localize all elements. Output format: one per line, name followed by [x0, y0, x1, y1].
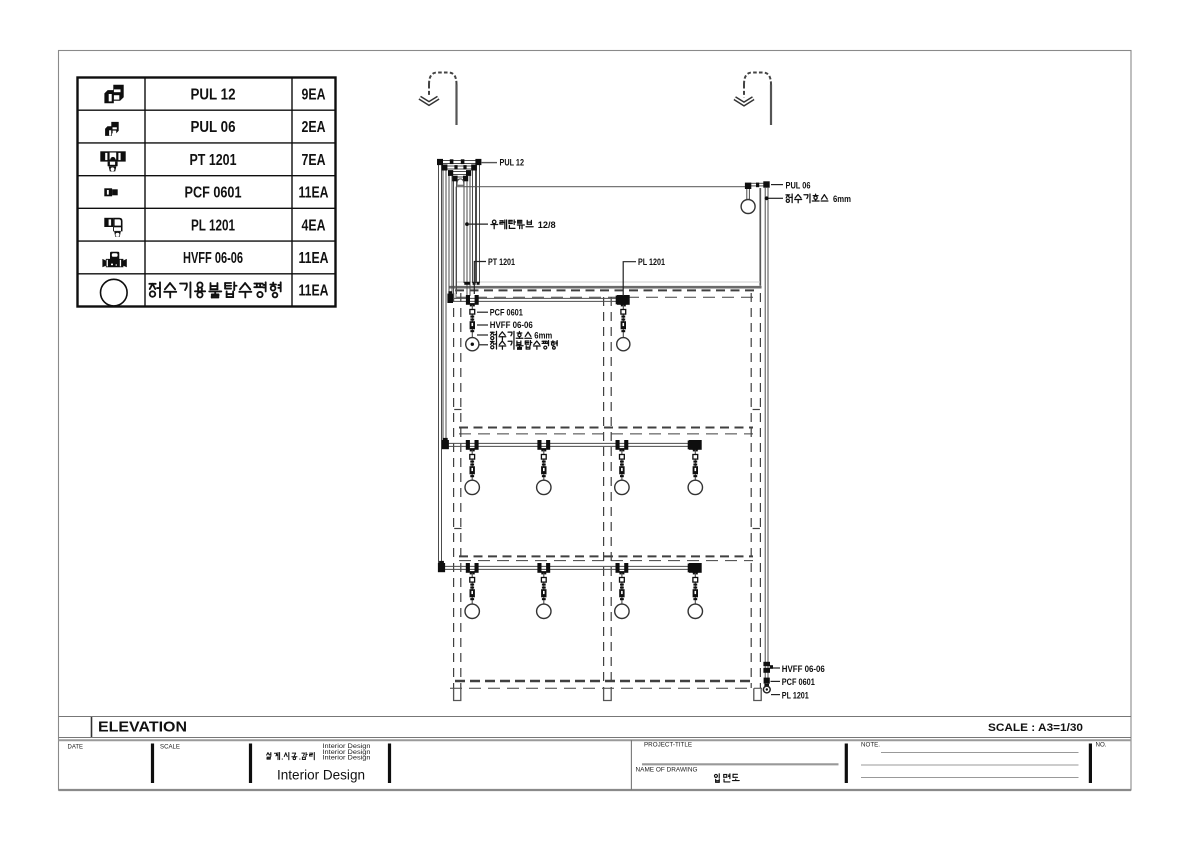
- svg-text:Interior Design: Interior Design: [323, 755, 371, 762]
- svg-text:PCF 0601: PCF 0601: [490, 307, 523, 318]
- svg-text:11EA: 11EA: [299, 250, 329, 267]
- svg-text:PUL 12: PUL 12: [500, 156, 525, 167]
- svg-text:2EA: 2EA: [302, 119, 326, 136]
- svg-text:HVFF 06-06: HVFF 06-06: [782, 663, 825, 674]
- svg-text:11EA: 11EA: [299, 185, 329, 202]
- svg-text:HVFF 06-06: HVFF 06-06: [183, 250, 243, 267]
- svg-text:NAME OF DRAWING: NAME OF DRAWING: [636, 767, 698, 774]
- svg-text:NOTE.: NOTE.: [861, 741, 880, 748]
- svg-text:PUL 12: PUL 12: [191, 86, 236, 103]
- svg-text:PUL 06: PUL 06: [191, 119, 236, 136]
- svg-text:Interior Design: Interior Design: [277, 768, 365, 783]
- svg-text:PCF 0601: PCF 0601: [185, 185, 242, 202]
- svg-text:DATE: DATE: [68, 743, 84, 750]
- svg-text:ELEVATION: ELEVATION: [98, 719, 187, 736]
- svg-text:SCALE : A3=1/30: SCALE : A3=1/30: [988, 722, 1083, 734]
- svg-text:HVFF 06-06: HVFF 06-06: [490, 319, 533, 330]
- svg-text:PCF 0601: PCF 0601: [782, 676, 815, 687]
- svg-text:6mm: 6mm: [833, 193, 851, 204]
- svg-text:7EA: 7EA: [302, 152, 326, 169]
- svg-text:12/8: 12/8: [538, 219, 556, 230]
- svg-text:PT 1201: PT 1201: [190, 152, 237, 169]
- svg-text:4EA: 4EA: [302, 217, 326, 234]
- svg-text:PL 1201: PL 1201: [782, 689, 809, 700]
- svg-text:PL 1201: PL 1201: [191, 217, 235, 234]
- svg-text:PT 1201: PT 1201: [488, 256, 515, 267]
- svg-text:PUL 06: PUL 06: [786, 180, 811, 191]
- svg-text:PROJECT-TITLE: PROJECT-TITLE: [644, 741, 692, 748]
- svg-text:NO.: NO.: [1096, 741, 1107, 748]
- svg-text:PL 1201: PL 1201: [638, 256, 665, 267]
- svg-text:9EA: 9EA: [302, 86, 326, 103]
- svg-text:6mm: 6mm: [534, 330, 552, 341]
- svg-text:11EA: 11EA: [299, 283, 329, 300]
- svg-text:SCALE: SCALE: [160, 743, 180, 750]
